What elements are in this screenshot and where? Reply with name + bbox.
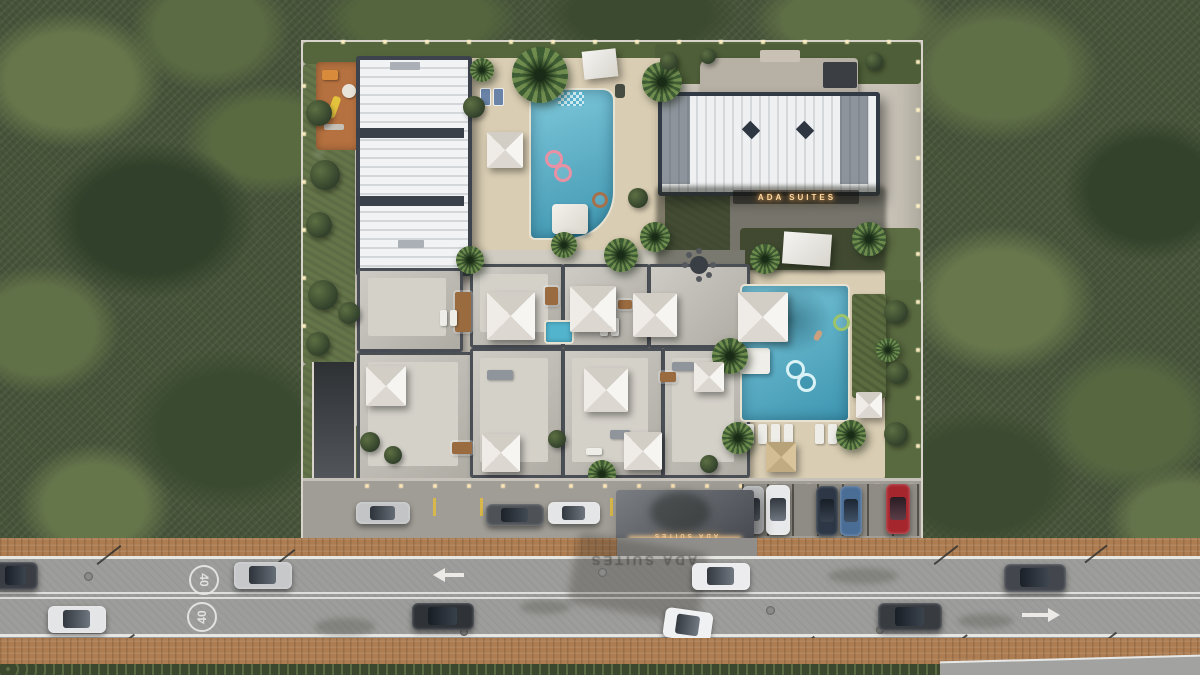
lounger-pair-2a	[440, 310, 447, 326]
road-car	[234, 562, 292, 589]
building-a-band-1	[356, 128, 464, 138]
bush	[308, 280, 338, 310]
pool-daybed-float	[552, 204, 588, 234]
playground-roundabout	[342, 84, 356, 98]
bush	[628, 188, 648, 208]
bush	[310, 160, 340, 190]
dining-table-3	[452, 442, 472, 454]
road-shadow-text: ADA SUITES	[578, 548, 708, 568]
lounger-pair-2b	[450, 310, 457, 326]
patio-umbrella-tan	[766, 442, 796, 472]
palm-tree	[456, 246, 484, 274]
plunge-pool	[546, 322, 572, 342]
bush	[306, 332, 330, 356]
lane-arrow-left	[426, 568, 466, 582]
bush	[338, 302, 360, 324]
speed-limit-marking: 40	[189, 565, 219, 595]
road-car	[878, 603, 942, 631]
wall-lights-right	[916, 42, 920, 492]
terrace-sofa-1	[487, 370, 513, 380]
rear-pool-float-green	[833, 314, 850, 331]
building-a-band-2	[356, 196, 464, 206]
road-car	[0, 562, 38, 590]
pool-sculpture	[615, 84, 625, 98]
bush	[384, 446, 402, 464]
palm-tree	[722, 422, 754, 454]
patio-umbrella	[570, 286, 616, 332]
pool-umbrella	[738, 292, 788, 342]
road-stain	[958, 614, 1013, 628]
road-stain	[828, 568, 898, 584]
canopy-tree-shadow	[650, 492, 710, 532]
round-dining-table	[690, 256, 708, 274]
building-b-rooftop-deck	[760, 50, 800, 62]
patio-umbrella	[694, 362, 724, 392]
patio-umbrella	[584, 368, 628, 412]
bush	[865, 52, 883, 70]
palm-tree	[836, 420, 866, 450]
manhole	[598, 568, 607, 577]
arrow-head	[426, 568, 445, 582]
arrow-shaft	[1022, 613, 1048, 617]
lounger-row-a3	[771, 424, 780, 444]
terrace-1	[368, 278, 446, 336]
building-a-vent	[390, 62, 420, 70]
manhole	[84, 572, 93, 581]
bush	[463, 96, 485, 118]
parked-car	[766, 485, 790, 535]
lounger-3	[586, 448, 602, 455]
road-edge-line-bottom	[0, 634, 1200, 637]
bush	[306, 212, 332, 238]
patio-umbrella	[487, 132, 523, 168]
playground-swing	[324, 124, 344, 130]
building-b-wing-right	[840, 96, 868, 184]
bush	[886, 362, 908, 384]
building-b-rooftop-box	[823, 62, 857, 88]
road-car	[692, 563, 750, 590]
dining-table-long	[455, 292, 471, 332]
rear-pool-float-blue-2	[797, 373, 816, 392]
parked-car	[886, 484, 910, 534]
patio-umbrella	[366, 366, 406, 406]
terrace-sofa-2	[672, 362, 694, 371]
parked-car	[486, 504, 544, 526]
road-stain	[520, 600, 570, 614]
arrow-head	[1048, 608, 1067, 622]
shade-sail	[782, 231, 832, 266]
road-car	[48, 606, 106, 633]
main-pool-steps	[558, 92, 584, 106]
bush	[700, 455, 718, 473]
palm-tree	[640, 222, 670, 252]
palm-tree	[876, 338, 900, 362]
manhole	[766, 606, 775, 615]
patio-umbrella	[624, 432, 662, 470]
pool-float-pink-2	[554, 164, 572, 182]
lounger-row-a2	[758, 424, 767, 444]
speed-limit-marking: 40	[187, 602, 217, 632]
road-car	[1004, 564, 1066, 592]
bush	[884, 422, 908, 446]
parked-car	[840, 486, 862, 536]
playground-equipment	[322, 70, 338, 80]
bush	[360, 432, 380, 452]
dining-table-5	[618, 300, 632, 309]
lane-arrow-right	[1020, 608, 1060, 622]
bush	[884, 300, 908, 324]
road-stain	[315, 618, 375, 636]
patio-umbrella	[633, 293, 677, 337]
lounger-row-a4	[784, 424, 793, 444]
lounger-row-b1	[815, 424, 824, 444]
stall-post-3	[610, 498, 613, 516]
wall-lights-left	[302, 42, 306, 372]
pool-float-brown	[592, 192, 608, 208]
palm-tree	[512, 47, 568, 103]
garage-ramp	[312, 362, 356, 489]
stall-post-2	[480, 498, 483, 516]
palm-tree	[642, 62, 682, 102]
palm-tree	[750, 244, 780, 274]
palm-tree	[470, 58, 494, 82]
bush	[306, 100, 332, 126]
patio-umbrella	[856, 392, 882, 418]
dining-table-4	[660, 372, 676, 382]
building-sign: ADA SUITES	[737, 192, 857, 203]
road-car	[412, 603, 474, 630]
bush	[660, 52, 678, 70]
aerial-render: ADA SUITES	[0, 0, 1200, 675]
wall-lights-top	[303, 40, 921, 44]
palm-tree	[852, 222, 886, 256]
blue-lounger-2	[493, 88, 504, 106]
bush	[548, 430, 566, 448]
building-b-wing-left	[662, 96, 690, 184]
palm-tree	[551, 232, 577, 258]
parked-car	[548, 502, 600, 524]
palm-tree	[604, 238, 638, 272]
building-a-vent-2	[398, 240, 424, 248]
patio-umbrella	[487, 292, 535, 340]
stall-post-1	[433, 498, 436, 516]
parked-car	[356, 502, 410, 524]
bush	[700, 48, 716, 64]
shade-sail	[582, 48, 619, 79]
parked-car	[816, 486, 838, 536]
dining-table-2	[545, 287, 558, 305]
gazebo-pyramid-roof	[482, 434, 520, 472]
